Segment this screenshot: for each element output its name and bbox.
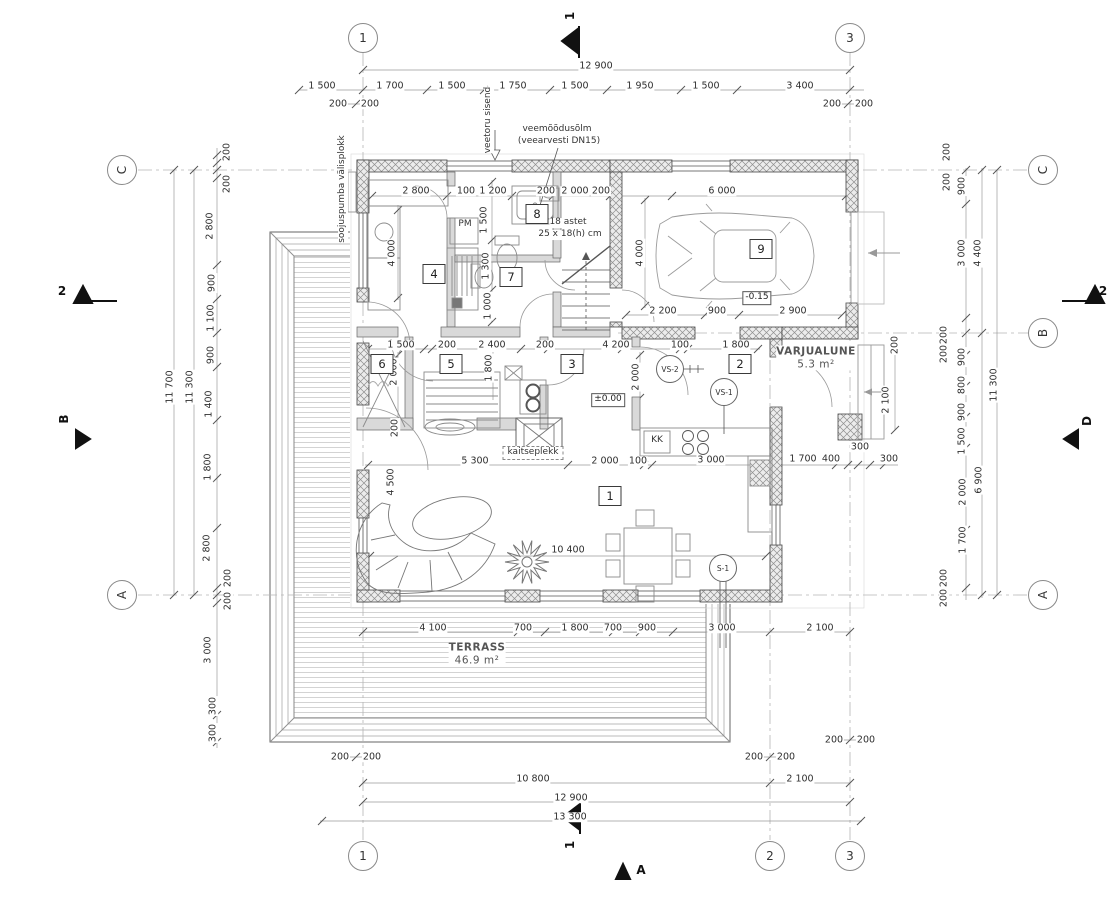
- section-label-2: 2: [1099, 284, 1107, 298]
- section-label-1: 1: [563, 841, 577, 849]
- dimension-label: 200: [854, 99, 874, 109]
- room-number: 8: [526, 204, 549, 224]
- annotation: 25 x 18(h) cm: [538, 230, 601, 240]
- grid-bubble: C: [1028, 155, 1058, 185]
- dimension-label: 200: [360, 99, 380, 109]
- room-number: 2: [729, 354, 752, 374]
- dimension-label: 200: [222, 174, 232, 194]
- dimension-label: 10 800: [515, 774, 550, 784]
- dimension-label: 1 000: [483, 291, 493, 320]
- dimension-label: 1 800: [721, 340, 750, 350]
- dimension-label: 1 700: [375, 81, 404, 91]
- dimension-label: 200: [536, 186, 556, 196]
- dimension-label: 1 500: [691, 81, 720, 91]
- dimension-label: 1 200: [478, 186, 507, 196]
- dimension-label: 11 300: [185, 369, 195, 404]
- dimension-label: 200: [939, 588, 949, 608]
- reference-circle-s-1: S-1: [709, 554, 737, 582]
- dimension-label: 200: [890, 335, 900, 355]
- dimension-label: 700: [603, 623, 623, 633]
- dimension-label: 200: [939, 325, 949, 345]
- dimension-label: 200: [942, 172, 952, 192]
- dimension-label: 900: [206, 345, 216, 365]
- dimension-label: 900: [707, 306, 727, 316]
- grid-bubble-label: C: [115, 166, 129, 174]
- annotation: soojuspumba välisplokk: [338, 135, 348, 243]
- dimension-label: 200: [856, 735, 876, 745]
- dimension-label: 2 200: [648, 306, 677, 316]
- dimension-label: 700: [513, 623, 533, 633]
- dimension-label: 200: [437, 340, 457, 350]
- room-number: 4: [423, 264, 446, 284]
- dimension-label: 1 100: [206, 303, 216, 332]
- grid-bubble-label: 2: [766, 849, 774, 863]
- dimension-label: 200: [535, 340, 555, 350]
- dimension-label: 200: [822, 99, 842, 109]
- dimension-label: 1 500: [437, 81, 466, 91]
- grid-bubble-label: A: [115, 591, 129, 599]
- dimension-label: 4 000: [635, 238, 645, 267]
- dimension-label: 4 000: [387, 238, 397, 267]
- dimension-label: 200: [776, 752, 796, 762]
- annotation: 18 astet: [549, 218, 586, 228]
- dimension-label: 3 000: [203, 635, 213, 664]
- area-label: TERRASS46.9 m²: [449, 641, 506, 666]
- dimension-label: 200: [223, 591, 233, 611]
- room-number: 5: [440, 354, 463, 374]
- annotation: veemõõdusõlm: [522, 125, 591, 135]
- dimension-label: 1 700: [788, 454, 817, 464]
- dimension-label: 200: [390, 418, 400, 438]
- grid-bubble-label: 1: [359, 849, 367, 863]
- dimension-label: 200: [824, 735, 844, 745]
- dimension-label: 5 300: [460, 456, 489, 466]
- dimension-label: 2 400: [477, 340, 506, 350]
- dimension-label: 400: [821, 454, 841, 464]
- dimension-label: 13 300: [552, 812, 587, 822]
- section-label-b: B: [57, 414, 71, 423]
- dimension-label: 1 800: [484, 353, 494, 382]
- grid-bubble-label: C: [1036, 166, 1050, 174]
- dimension-label: 2 000: [560, 186, 589, 196]
- grid-bubble: 3: [835, 23, 865, 53]
- annotation: (veearvesti DN15): [518, 137, 600, 147]
- dimension-label: 200: [222, 142, 232, 162]
- dimension-label: 900: [637, 623, 657, 633]
- dimension-label: 3 000: [957, 238, 967, 267]
- annotation: KK: [651, 436, 663, 446]
- dimension-label: 900: [957, 176, 967, 196]
- grid-bubble: 1: [348, 841, 378, 871]
- dimension-label: 200: [939, 344, 949, 364]
- dimension-label: 200: [939, 568, 949, 588]
- dimension-label: 300: [879, 454, 899, 464]
- grid-bubble-label: B: [1036, 329, 1050, 337]
- dimension-label: 800: [957, 375, 967, 395]
- floor-plan-sheet: 12 9001 5001 7001 5001 7501 5001 9501 50…: [0, 0, 1116, 904]
- dimension-label: 200: [362, 752, 382, 762]
- dimension-label: 3 000: [696, 455, 725, 465]
- dimension-label: 900: [957, 347, 967, 367]
- dimension-label: 6 000: [707, 186, 736, 196]
- dimension-label: 4 200: [601, 340, 630, 350]
- area-label: VARJUALUNE5.3 m²: [776, 345, 856, 370]
- grid-bubble: 1: [348, 23, 378, 53]
- dimension-label: 12 900: [553, 793, 588, 803]
- dimension-label: 200: [942, 142, 952, 162]
- dimension-label: 1 500: [386, 340, 415, 350]
- annotation: kaitseplekk: [503, 446, 564, 460]
- dimension-label: 200: [330, 752, 350, 762]
- annotation: PM: [458, 220, 471, 230]
- dimension-label: 2 100: [881, 385, 891, 414]
- dimension-label: 900: [957, 402, 967, 422]
- annotation: veetoru sisend: [484, 87, 494, 154]
- dimension-label: 2 000: [631, 362, 641, 391]
- dimension-label: 200: [744, 752, 764, 762]
- dimension-label: 4 400: [973, 238, 983, 267]
- section-label-1: 1: [563, 12, 577, 20]
- dimension-label: 11 700: [165, 369, 175, 404]
- dimension-label: 6 900: [974, 465, 984, 494]
- grid-bubble-label: 3: [846, 849, 854, 863]
- grid-bubble: A: [1028, 580, 1058, 610]
- grid-bubble: 2: [755, 841, 785, 871]
- grid-bubble-label: 1: [359, 31, 367, 45]
- level-marker: ±0.00: [591, 393, 625, 407]
- reference-circle-vs-1: VS-1: [710, 378, 738, 406]
- dimension-label: 1 800: [203, 452, 213, 481]
- area-size: 46.9 m²: [449, 654, 506, 667]
- dimension-label: 2 800: [401, 186, 430, 196]
- section-label-d: D: [1080, 416, 1094, 426]
- reference-circle-vs-2: VS-2: [656, 355, 684, 383]
- dimension-label: 2 800: [205, 211, 215, 240]
- dimension-label: 1 500: [307, 81, 336, 91]
- area-title: TERRASS: [449, 641, 506, 654]
- grid-bubble: C: [107, 155, 137, 185]
- grid-bubble: 3: [835, 841, 865, 871]
- dimension-label: 200: [223, 568, 233, 588]
- dimension-label: 100: [670, 340, 690, 350]
- section-label-2: 2: [58, 284, 66, 298]
- dimension-label: 900: [207, 273, 217, 293]
- dimension-label: 1 300: [481, 251, 491, 280]
- dimension-label: 2 900: [778, 306, 807, 316]
- dimension-label: 11 300: [989, 367, 999, 402]
- dimension-label: 1 800: [560, 623, 589, 633]
- area-size: 5.3 m²: [776, 358, 856, 371]
- level-marker: -0.15: [742, 291, 771, 305]
- dimension-label: 200: [591, 186, 611, 196]
- dimension-label: 4 500: [386, 467, 396, 496]
- grid-bubble: A: [107, 580, 137, 610]
- dimension-label: 1 700: [958, 525, 968, 554]
- grid-bubble: B: [1028, 318, 1058, 348]
- dimension-label: 1 950: [625, 81, 654, 91]
- dimension-label: 12 900: [578, 61, 613, 71]
- dimension-label: 2 100: [805, 623, 834, 633]
- room-number: 1: [599, 486, 622, 506]
- dimension-label: 200: [328, 99, 348, 109]
- dimension-label: 100: [628, 456, 648, 466]
- grid-bubble-label: A: [1036, 591, 1050, 599]
- dimension-label: 1 400: [204, 389, 214, 418]
- room-number: 7: [500, 267, 523, 287]
- dimension-label: 2 800: [202, 533, 212, 562]
- dimension-label: 300: [208, 723, 218, 743]
- dimension-label: 300: [208, 696, 218, 716]
- dimension-label: 1 500: [560, 81, 589, 91]
- dimension-label: 100: [456, 186, 476, 196]
- room-number: 6: [371, 354, 394, 374]
- room-number: 3: [561, 354, 584, 374]
- dimension-label: 10 400: [550, 545, 585, 555]
- dimension-label: 1 500: [957, 426, 967, 455]
- room-number: 9: [750, 239, 773, 259]
- section-label-a: A: [636, 863, 645, 877]
- dimension-label: 2 000: [958, 477, 968, 506]
- dimension-label: 1 750: [498, 81, 527, 91]
- grid-bubble-label: 3: [846, 31, 854, 45]
- dimension-label: 3 000: [707, 623, 736, 633]
- dimension-label: 2 100: [785, 774, 814, 784]
- area-title: VARJUALUNE: [776, 345, 856, 358]
- dimension-label: 4 100: [418, 623, 447, 633]
- dimension-label: 2 000: [590, 456, 619, 466]
- dimension-label: 300: [850, 442, 870, 452]
- dimension-label: 1 500: [479, 205, 489, 234]
- dimension-label: 3 400: [785, 81, 814, 91]
